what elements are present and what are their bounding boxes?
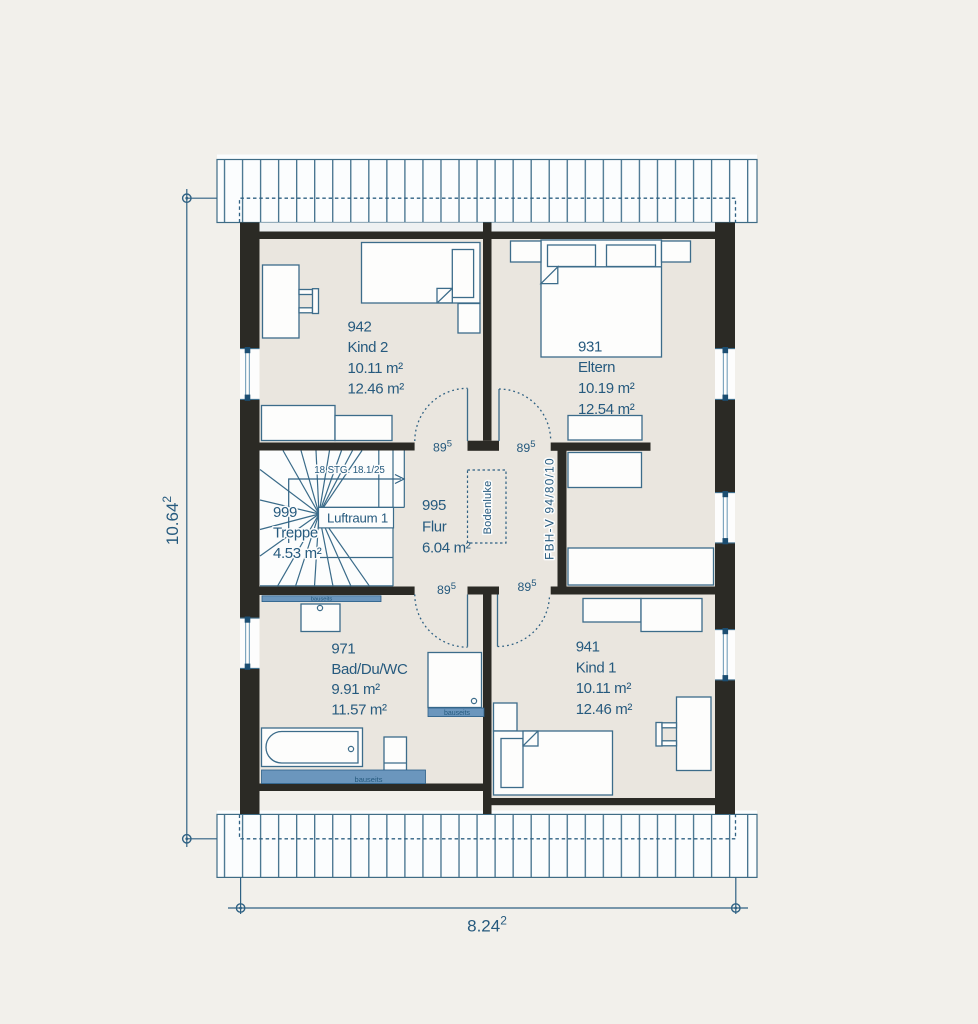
svg-text:Luftraum 1: Luftraum 1 xyxy=(327,511,388,526)
svg-text:9.91 m²: 9.91 m² xyxy=(331,681,380,698)
svg-text:Flur: Flur xyxy=(422,519,447,536)
svg-text:Kind 1: Kind 1 xyxy=(576,659,616,676)
svg-text:12.46 m²: 12.46 m² xyxy=(576,701,633,718)
svg-text:10.19 m²: 10.19 m² xyxy=(578,380,635,397)
svg-text:999: 999 xyxy=(273,504,297,521)
svg-text:4.53 m²: 4.53 m² xyxy=(273,545,322,562)
svg-text:10.642: 10.642 xyxy=(160,496,182,546)
svg-text:FBH-V 94/80/10: FBH-V 94/80/10 xyxy=(543,457,557,560)
svg-text:18 STG. 18.1/25: 18 STG. 18.1/25 xyxy=(314,465,385,476)
svg-text:bauseits: bauseits xyxy=(311,597,333,603)
svg-text:12.54 m²: 12.54 m² xyxy=(578,401,635,418)
svg-text:942: 942 xyxy=(348,318,372,335)
svg-text:971: 971 xyxy=(331,641,355,658)
svg-text:931: 931 xyxy=(578,338,602,355)
svg-text:Eltern: Eltern xyxy=(578,359,615,376)
svg-text:6.04 m²: 6.04 m² xyxy=(422,540,471,557)
svg-text:941: 941 xyxy=(576,639,600,656)
svg-text:995: 995 xyxy=(422,497,446,514)
svg-text:Bodenluke: Bodenluke xyxy=(482,481,494,535)
svg-text:Bad/Du/WC: Bad/Du/WC xyxy=(331,661,408,678)
svg-text:bauseits: bauseits xyxy=(355,775,383,784)
svg-text:bauseits: bauseits xyxy=(444,710,471,717)
svg-text:Kind 2: Kind 2 xyxy=(348,339,388,356)
svg-text:10.11 m²: 10.11 m² xyxy=(348,360,404,377)
svg-text:12.46 m²: 12.46 m² xyxy=(348,381,405,398)
svg-text:10.11 m²: 10.11 m² xyxy=(576,680,632,697)
svg-text:11.57 m²: 11.57 m² xyxy=(331,702,387,719)
svg-text:Treppe: Treppe xyxy=(273,525,318,542)
